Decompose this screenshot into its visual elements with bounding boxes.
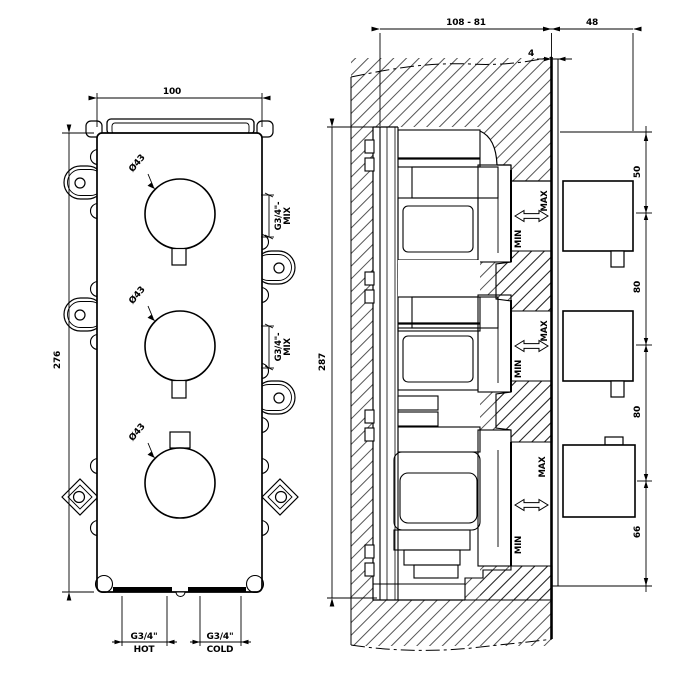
hot-inlet-size: G3/4" bbox=[131, 632, 158, 642]
width-dim-text: 100 bbox=[163, 87, 181, 97]
handle-3-tab bbox=[605, 437, 623, 445]
hot-inlet-port bbox=[113, 587, 172, 593]
spacing-dim-50: 50 bbox=[633, 166, 643, 178]
protection-cap bbox=[107, 119, 254, 134]
min-label: MIN bbox=[514, 360, 524, 378]
body-height-dim: 287 bbox=[318, 353, 328, 371]
external-handles bbox=[563, 181, 635, 517]
section-view: MAX MIN MAX MIN MAX MIN 108 - bbox=[318, 18, 652, 650]
thermostatic-valve-drawing: MAX MIN MAX MIN MAX MIN 108 - bbox=[0, 0, 700, 700]
height-dim-text: 276 bbox=[53, 351, 63, 369]
cold-inlet-size: G3/4" bbox=[207, 632, 234, 642]
front-view: Ø43 Ø43 Ø43 G3/4"- MIX G3/4"- MIX bbox=[53, 87, 298, 655]
depth-range-dim: 108 - 81 bbox=[446, 18, 486, 28]
cold-inlet-port bbox=[188, 587, 246, 593]
knob-3-stem bbox=[170, 432, 190, 448]
height-dimension bbox=[62, 133, 94, 592]
spacing-dim-80a: 80 bbox=[633, 281, 643, 293]
min-label: MIN bbox=[514, 536, 524, 554]
technical-drawing-sheet: MAX MIN MAX MIN MAX MIN 108 - bbox=[0, 0, 700, 700]
knob-2 bbox=[145, 311, 215, 381]
mix-port-dim-2: G3/4"- MIX bbox=[261, 324, 293, 370]
handle-1 bbox=[563, 181, 633, 251]
station2-tower-white bbox=[478, 295, 511, 392]
station1-tower-white bbox=[478, 165, 511, 262]
handle-1-tab bbox=[611, 251, 624, 267]
handle-3 bbox=[563, 445, 635, 517]
diamond-bracket-right bbox=[262, 479, 298, 515]
min-label: MIN bbox=[514, 230, 524, 248]
handle-2 bbox=[563, 311, 633, 381]
spacing-dim-80b: 80 bbox=[633, 406, 643, 418]
cold-inlet-label: COLD bbox=[207, 645, 234, 655]
station3-tower-white bbox=[478, 430, 511, 566]
diamond-bracket-left bbox=[62, 479, 98, 515]
hot-inlet-label: HOT bbox=[134, 645, 156, 655]
knob-1 bbox=[145, 179, 215, 249]
max-label: MAX bbox=[540, 320, 550, 342]
spacing-dim-66: 66 bbox=[633, 526, 643, 538]
control-knobs bbox=[145, 179, 215, 518]
knob-2-stem bbox=[172, 381, 186, 399]
mix-port-label: MIX bbox=[283, 338, 293, 356]
handle-2-tab bbox=[611, 381, 624, 397]
max-label: MAX bbox=[540, 190, 550, 212]
center-notch bbox=[176, 592, 185, 597]
knob-3 bbox=[145, 448, 215, 518]
face-offset-dim: 4 bbox=[528, 49, 534, 59]
knob-1-stem bbox=[172, 249, 186, 266]
max-label: MAX bbox=[538, 456, 548, 478]
mix-port-label: MIX bbox=[283, 207, 293, 225]
mix-port-dim-1: G3/4"- MIX bbox=[261, 193, 293, 239]
handle-depth-dim: 48 bbox=[586, 18, 598, 28]
